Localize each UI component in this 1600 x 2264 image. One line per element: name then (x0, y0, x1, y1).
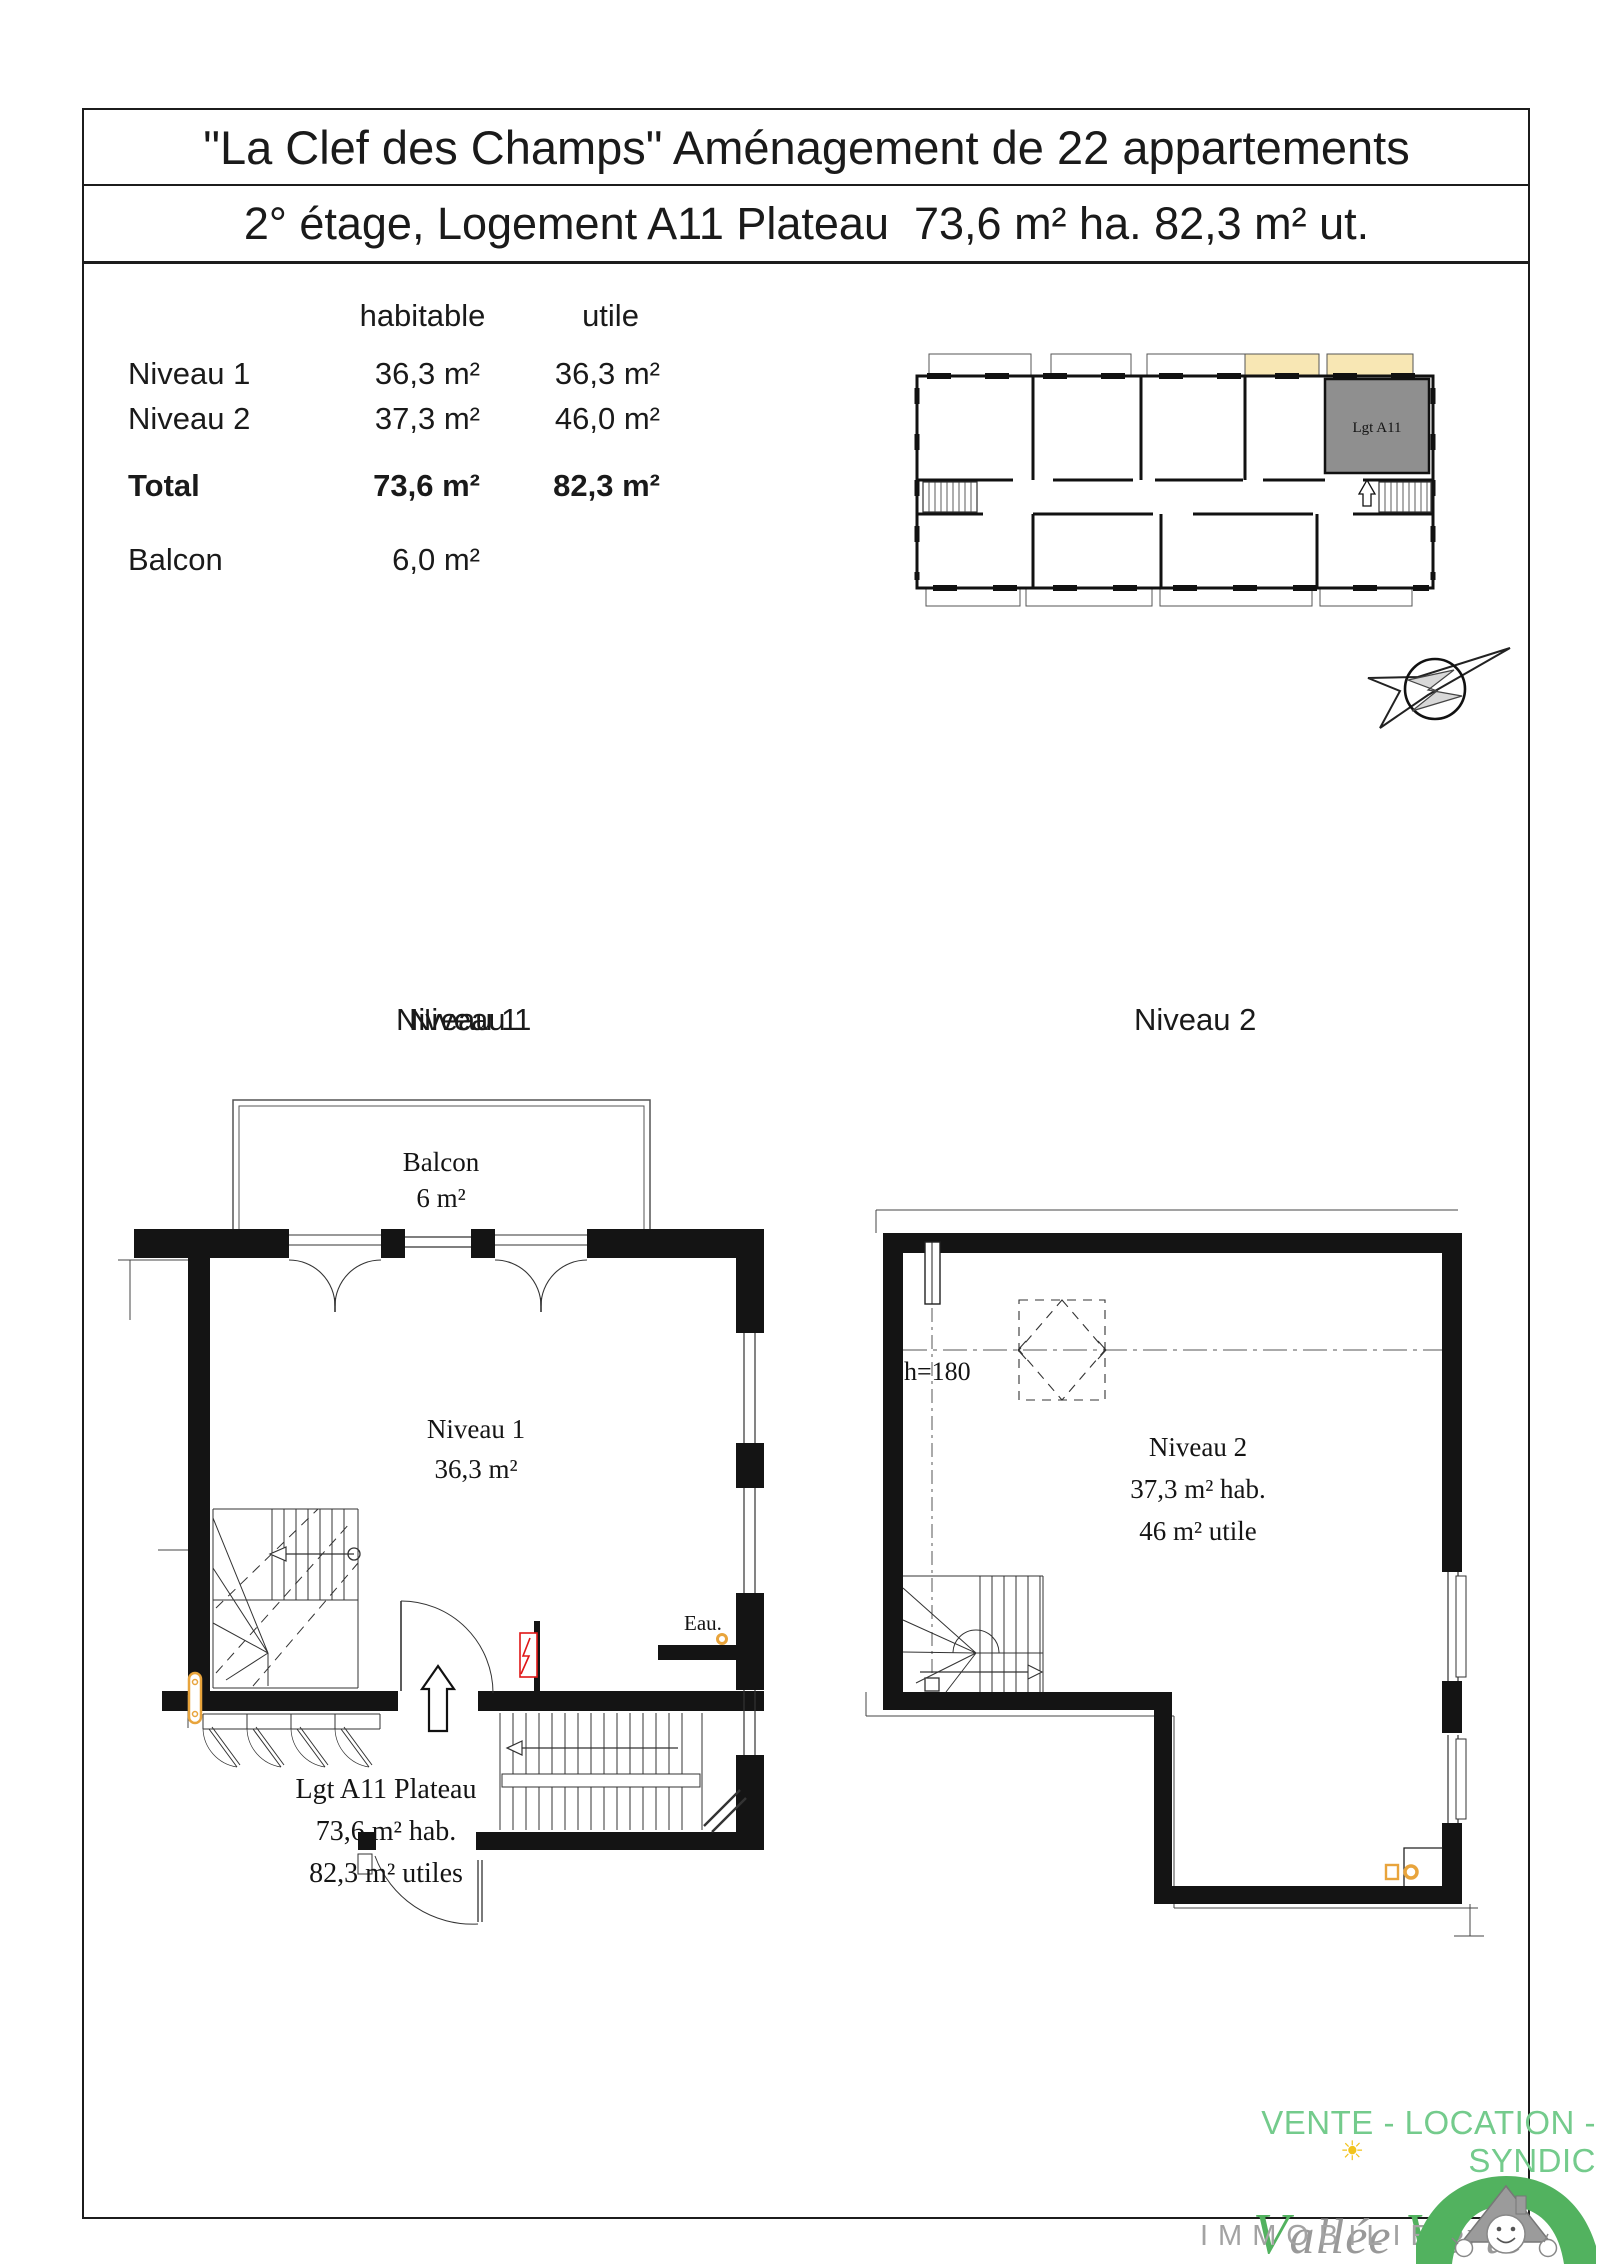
document-page: "La Clef des Champs" Aménagement de 22 a… (0, 0, 1600, 2264)
row-value: 46,0 m² (480, 401, 660, 437)
plan1-room-area: 36,3 m² (434, 1454, 517, 1484)
title-line-2: 2° étage, Logement A11 Plateau 73,6 m² h… (84, 187, 1529, 261)
plan2-area-line1: 37,3 m² hab. (1130, 1474, 1266, 1504)
plan1-water-label: Eau. (684, 1611, 722, 1635)
sun-icon: ☀ (1340, 2136, 1364, 2167)
row-value-total: 82,3 m² (480, 468, 660, 504)
keyplan-balconies-top (929, 354, 1413, 376)
plan2-walls (883, 1233, 1462, 1904)
plan1-balcony-label: Balcon (403, 1147, 480, 1177)
plan2-outlet-icons (1386, 1865, 1417, 1879)
title-separator-1 (82, 184, 1530, 186)
plan1-up-arrow-icon (422, 1666, 454, 1731)
plan1-radiator-icon (189, 1673, 201, 1723)
col-header-habitable: habitable (330, 298, 515, 334)
heading-niveau2: Niveau 2 (1134, 1002, 1256, 1038)
plan1-closet-doors (203, 1714, 380, 1767)
floor-plan-niveau1: Balcon 6 m² (118, 1088, 782, 2063)
plan1-thin-contours (118, 1260, 188, 1728)
plan1-balcony-area: 6 m² (416, 1183, 465, 1213)
title-separator-2 (82, 261, 1530, 264)
floor-plan-niveau2: h=180 Niveau 2 37,3 m² hab. 46 m² utile (858, 1148, 1522, 1958)
row-label-niveau1: Niveau 1 (128, 356, 250, 392)
plan2-room-label: Niveau 2 (1149, 1432, 1247, 1462)
row-value: 36,3 m² (480, 356, 660, 392)
page-border-right (1528, 108, 1530, 2219)
col-header-utile: utile (523, 298, 698, 334)
row-label-balcon: Balcon (128, 542, 223, 578)
plan1-room-label: Niveau 1 (427, 1414, 525, 1444)
plan1-water-tap-icon (718, 1635, 727, 1644)
plan2-height-label: h=180 (904, 1357, 971, 1386)
plan2-thin-contours (866, 1210, 1484, 1936)
plan1-caption-line2: 73,6 m² hab. (316, 1816, 457, 1847)
title-line-1: "La Clef des Champs" Aménagement de 22 a… (84, 110, 1529, 184)
plan2-stair (903, 1576, 1043, 1692)
key-plan: Lgt A11 (893, 330, 1445, 612)
keyplan-unit-label: Lgt A11 (1352, 420, 1401, 436)
page-border-left (82, 108, 84, 2219)
row-label-niveau2: Niveau 2 (128, 401, 250, 437)
mascot-house-icon (1412, 2158, 1600, 2264)
plan2-duct (925, 1242, 940, 1304)
heading-niveau1: Niveau 1 Niveau 1 (396, 1002, 616, 1038)
plan1-caption-line1: Lgt A11 Plateau (296, 1774, 477, 1805)
plan1-electric-icon (520, 1633, 537, 1677)
plan1-lower-stair (500, 1713, 746, 1832)
plan2-area-line2: 46 m² utile (1139, 1516, 1257, 1546)
row-value-total: 73,6 m² (300, 468, 480, 504)
row-value: 37,3 m² (300, 401, 480, 437)
row-value-balcon: 6,0 m² (300, 542, 480, 578)
plan1-windows (405, 1237, 755, 1755)
north-arrow-icon (1340, 628, 1530, 748)
plan1-caption-line3: 82,3 m² utiles (309, 1858, 463, 1889)
row-value: 36,3 m² (300, 356, 480, 392)
row-label-total: Total (128, 468, 200, 504)
plan1-winder-stair (213, 1509, 360, 1688)
